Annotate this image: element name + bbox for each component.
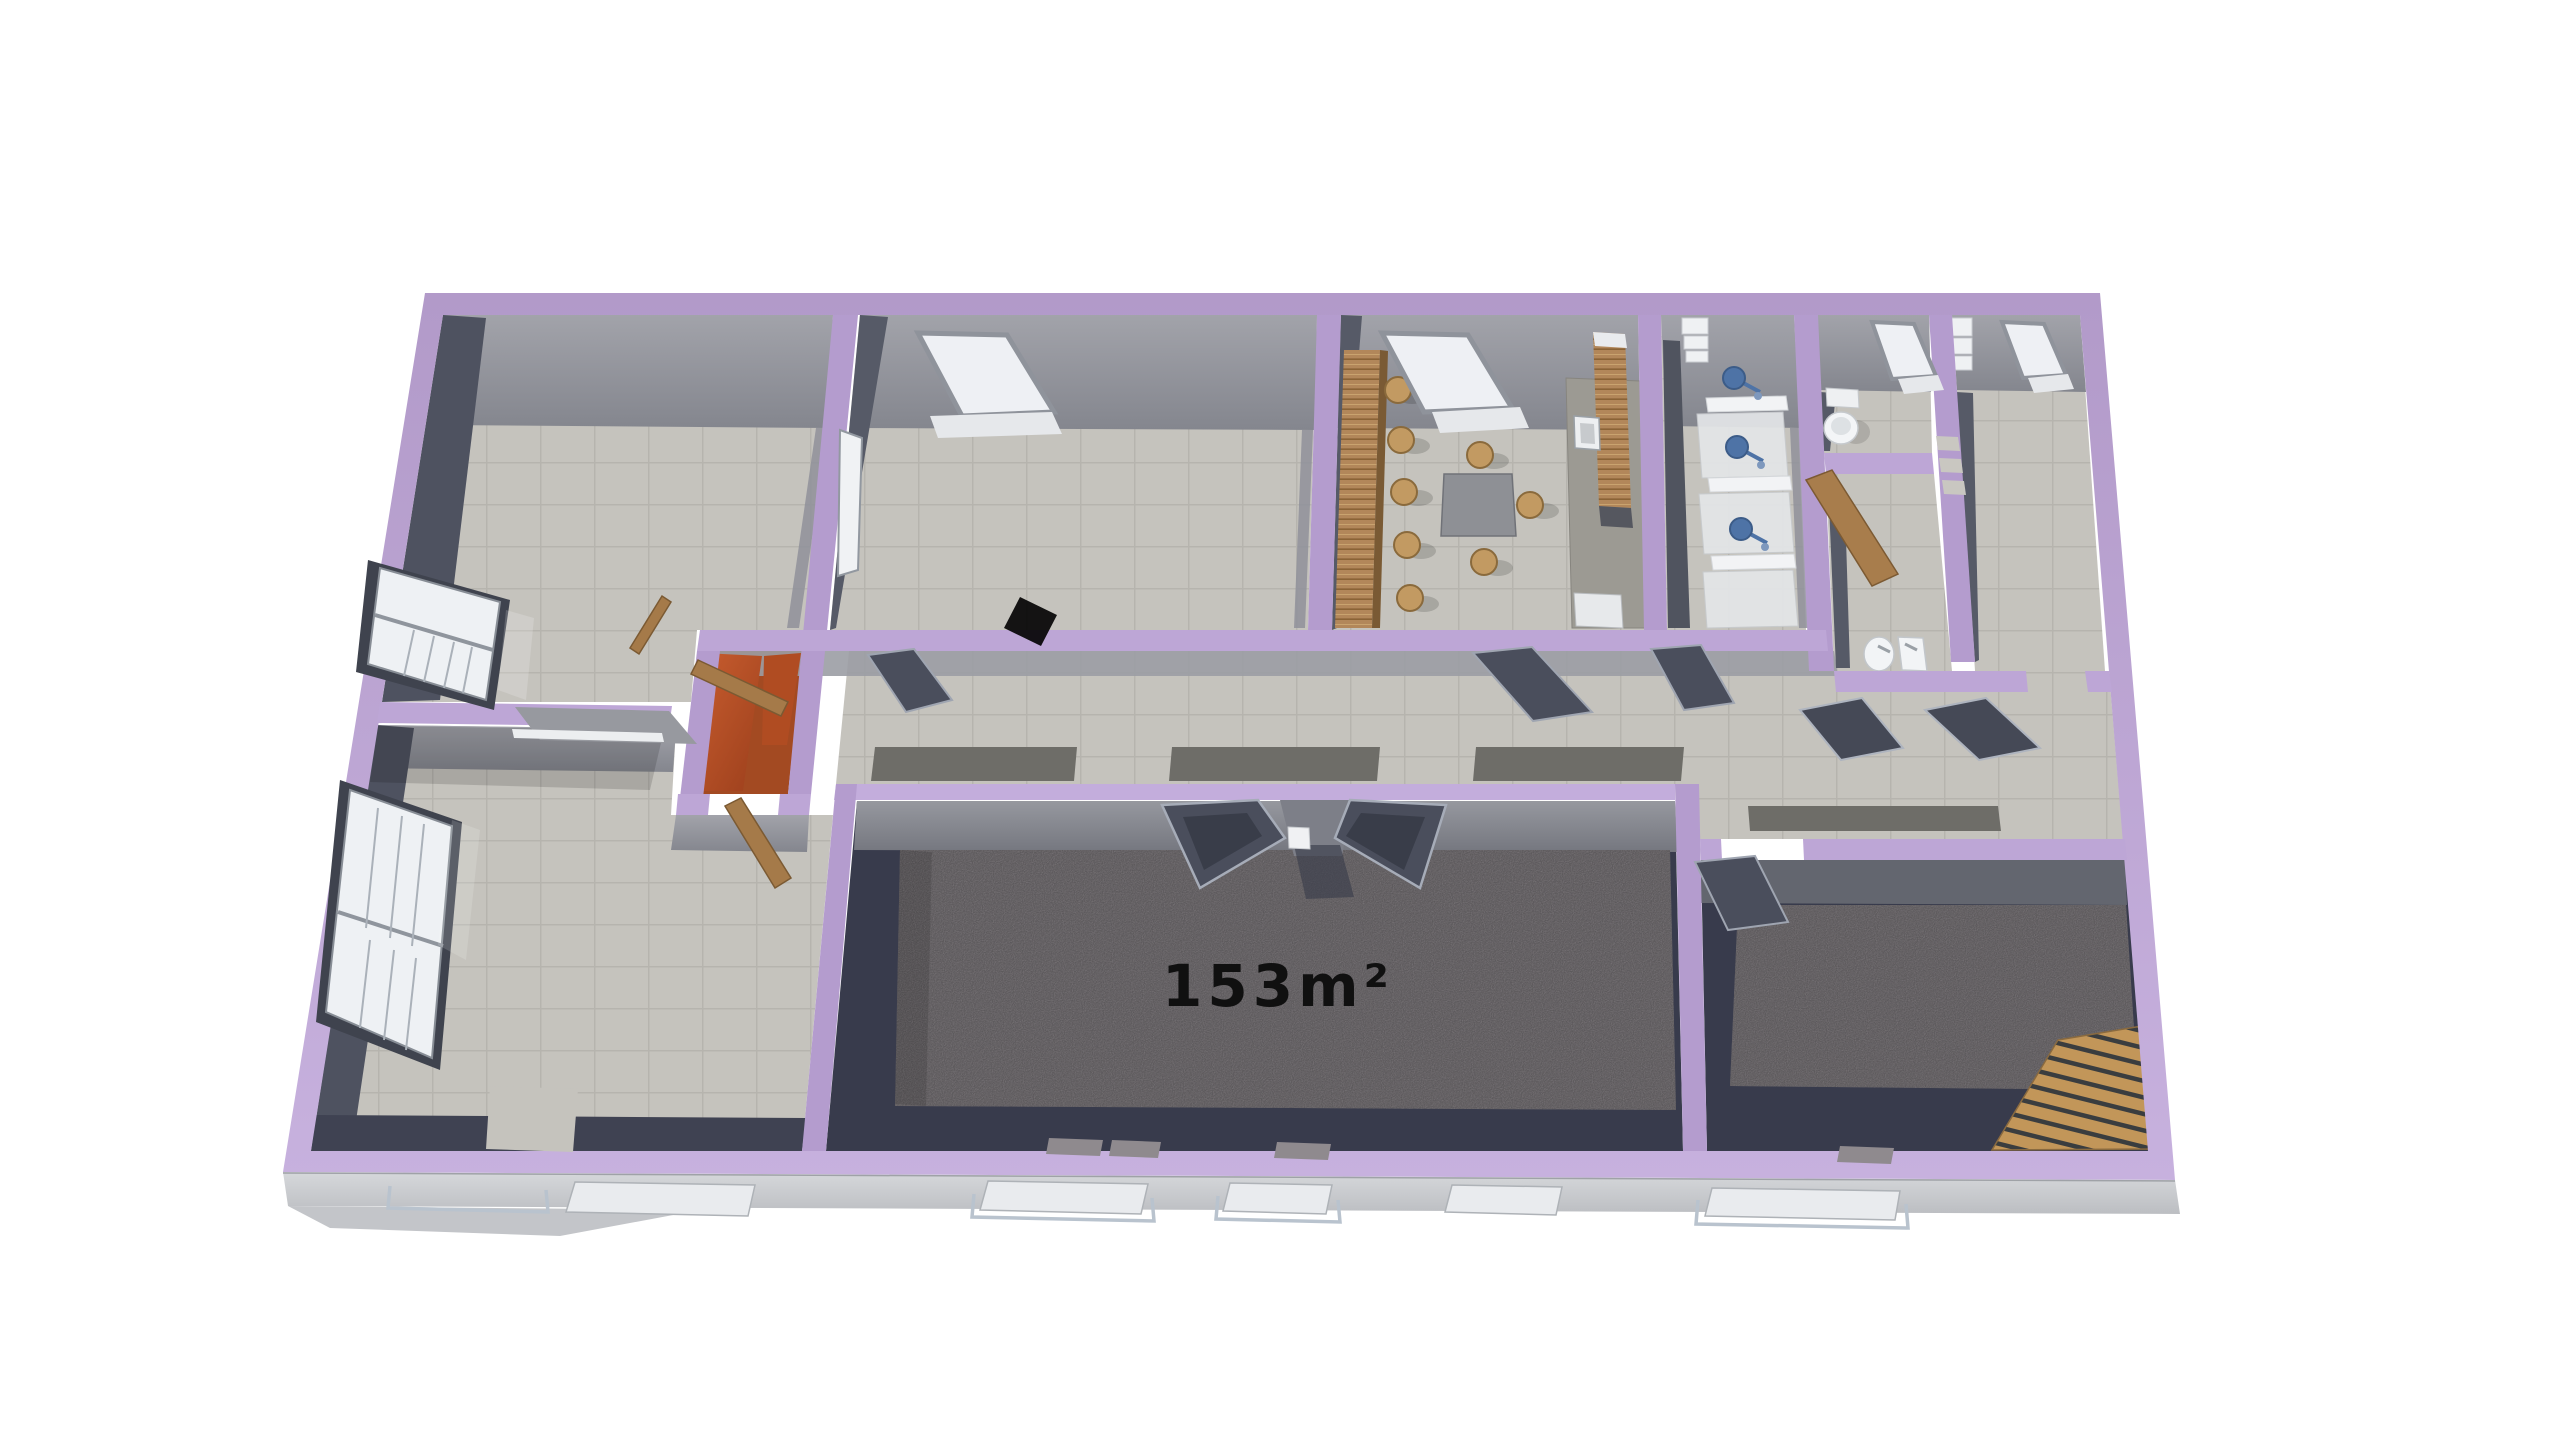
kitchen-sink-basin [1580, 423, 1595, 444]
shower-shelf [1684, 336, 1708, 349]
shower-partition [1706, 396, 1788, 412]
wall-vestibule-bottom [778, 794, 811, 815]
floor-plan-rendering: 153m² [0, 0, 2560, 1440]
shower-tray [1703, 570, 1798, 628]
wall-opening [1942, 480, 1966, 495]
runner-mat [1169, 747, 1380, 781]
shower-partition [1708, 476, 1792, 492]
threshold-tab [486, 1086, 578, 1152]
shower-valve [1761, 543, 1769, 551]
exterior-window [1445, 1185, 1562, 1215]
wall-vestibule-bottom [676, 794, 710, 815]
dining-table [1441, 474, 1516, 536]
bar-stool [1391, 479, 1417, 505]
runner-mat [871, 747, 1077, 781]
washbasin [1898, 637, 1927, 671]
threshold-tab [1046, 1138, 1103, 1156]
bar-stool [1397, 585, 1423, 611]
bar-stool [1388, 427, 1414, 453]
wall-opening [1936, 436, 1960, 451]
toilet-seat [1831, 417, 1851, 435]
interior-window [838, 430, 862, 576]
main-hall-carpet-shade [895, 850, 932, 1106]
skylight-sill [930, 412, 1062, 438]
room-top-left-north-face [436, 315, 833, 428]
exterior-window [1705, 1188, 1900, 1220]
shower-shelf [1686, 351, 1708, 362]
wall-washroom-hallway [1834, 671, 2028, 692]
door-post [1288, 827, 1310, 849]
wall-washroom-hallway [2085, 671, 2112, 692]
threshold-tab [1837, 1146, 1894, 1164]
shower-valve [1757, 461, 1765, 469]
kitchen-island-cap [1599, 506, 1633, 528]
shower-head-icon [1723, 367, 1745, 389]
chair [1517, 492, 1543, 518]
runner-mat [1473, 747, 1684, 781]
chair [1471, 549, 1497, 575]
threshold-tab [1109, 1140, 1161, 1158]
exterior-window [566, 1182, 755, 1216]
area-label: 153m² [1162, 952, 1394, 1020]
wall-bottom-right-top [1803, 839, 2127, 860]
shower-head-icon [1726, 436, 1748, 458]
washbasin [1864, 637, 1894, 671]
exterior-window [1223, 1183, 1332, 1214]
wall-wc-washroom [1824, 453, 1934, 474]
window-glass [326, 790, 452, 1058]
bar-stool [1394, 532, 1420, 558]
kitchen-island-top [1593, 332, 1627, 348]
exterior-window [980, 1181, 1148, 1214]
threshold-tab [1274, 1142, 1331, 1160]
toilet-tank [1826, 388, 1859, 408]
wall-main-hall-top [834, 784, 1675, 800]
floor-plan-canvas: 153m² [0, 0, 2560, 1440]
shower-valve [1754, 392, 1762, 400]
runner-mat [1748, 806, 2001, 831]
shower-shelf [1682, 318, 1708, 334]
chair [1467, 442, 1493, 468]
wall-opening [1939, 458, 1963, 473]
wall-bottom-right-top [1700, 839, 1722, 860]
kitchen-appliance [1574, 593, 1623, 628]
shower-head-icon [1730, 518, 1752, 540]
shower-partition [1711, 554, 1796, 570]
